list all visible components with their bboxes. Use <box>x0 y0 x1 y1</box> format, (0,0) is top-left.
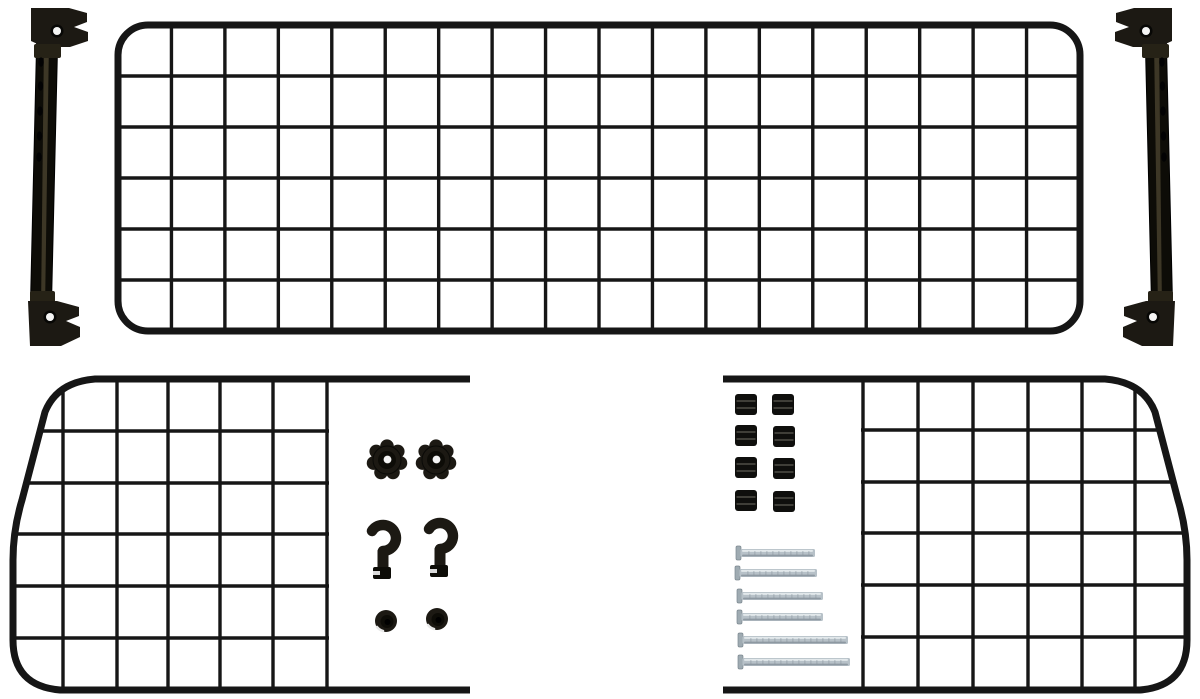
cap-hole <box>385 619 391 625</box>
knob-hole <box>433 456 441 464</box>
screw-thread <box>774 660 776 665</box>
spacer-body <box>735 425 757 446</box>
spacer-rib <box>775 439 794 441</box>
bar-screw-head <box>1149 313 1157 321</box>
end-cap <box>375 610 397 632</box>
spacer-rib <box>737 496 756 498</box>
bar-screw-head <box>53 27 61 35</box>
screw-thread <box>750 638 752 643</box>
screw-thread <box>768 660 770 665</box>
bar-adjust-hole <box>38 57 43 66</box>
screw-thread <box>753 571 755 576</box>
screw-highlight <box>744 637 846 639</box>
screw-thread <box>791 615 793 620</box>
knob-hole <box>384 456 392 464</box>
screw-thread <box>809 615 811 620</box>
bar-top-sleeve <box>34 44 61 58</box>
screw-thread <box>761 594 763 599</box>
screw-thread <box>778 551 780 556</box>
screw-thread <box>780 638 782 643</box>
spacer-body <box>773 491 795 512</box>
screw-head <box>738 655 743 669</box>
spacer-body <box>773 458 795 479</box>
end-cap <box>426 608 448 630</box>
screw-thread <box>785 594 787 599</box>
spacer-rib <box>737 431 756 433</box>
bar-adjust-hole <box>36 152 41 161</box>
spacer-rib <box>737 438 756 440</box>
screw-thread <box>750 660 752 665</box>
screw-thread <box>797 615 799 620</box>
screw-thread <box>755 594 757 599</box>
screw-thread <box>773 615 775 620</box>
screw-head <box>736 546 741 560</box>
screw-thread <box>804 660 806 665</box>
screw-thread <box>779 615 781 620</box>
spacer-rib <box>737 407 756 409</box>
screw-thread <box>815 594 817 599</box>
screw-thread <box>759 571 761 576</box>
screw-thread <box>807 571 809 576</box>
bar-adjust-hole <box>38 81 43 90</box>
screw-thread <box>779 594 781 599</box>
bar-adjust-hole <box>37 106 42 115</box>
screw-thread <box>754 551 756 556</box>
screw-thread <box>761 615 763 620</box>
screw-thread <box>809 594 811 599</box>
screw-thread <box>786 660 788 665</box>
screw-thread <box>784 551 786 556</box>
spacer-body <box>773 426 795 447</box>
spacer <box>735 425 757 446</box>
screw-thread <box>840 660 842 665</box>
cap-hole <box>436 617 442 623</box>
screw-thread <box>792 638 794 643</box>
bar-adjust-hole <box>1160 81 1165 90</box>
screw-head <box>738 633 743 647</box>
spacer-rib <box>737 400 756 402</box>
screw-thread <box>822 660 824 665</box>
screw-thread <box>834 638 836 643</box>
screw-thread <box>792 660 794 665</box>
screw-thread <box>785 615 787 620</box>
spacer-rib <box>775 504 794 506</box>
screw-thread <box>816 638 818 643</box>
screw-thread <box>804 638 806 643</box>
screw-thread <box>803 615 805 620</box>
screw-thread <box>777 571 779 576</box>
screw-thread <box>747 571 749 576</box>
screw-thread <box>756 660 758 665</box>
bar-adjust-hole <box>1159 57 1164 66</box>
spacer-rib <box>774 400 793 402</box>
spacer-rib <box>775 497 794 499</box>
spacer <box>735 490 757 511</box>
spacer-rib <box>774 407 793 409</box>
screw-thread <box>749 615 751 620</box>
screw-thread <box>762 660 764 665</box>
spacer <box>773 458 795 479</box>
screw-thread <box>801 571 803 576</box>
spacer-rib <box>737 470 756 472</box>
spacer-body <box>772 394 794 415</box>
screw-thread <box>797 594 799 599</box>
screw-thread <box>816 660 818 665</box>
screw-thread <box>815 615 817 620</box>
screw-thread <box>767 615 769 620</box>
spacer <box>735 457 757 478</box>
screw-thread <box>828 660 830 665</box>
screw-thread <box>768 638 770 643</box>
screw-thread <box>790 551 792 556</box>
screw-thread <box>772 551 774 556</box>
screw-thread <box>771 571 773 576</box>
spacer <box>735 394 757 415</box>
screw-thread <box>840 638 842 643</box>
screw-thread <box>791 594 793 599</box>
screw-thread <box>780 660 782 665</box>
screw-thread <box>755 615 757 620</box>
spacer-rib <box>737 503 756 505</box>
hook-foot-notch <box>430 569 437 573</box>
bar-adjust-hole <box>1161 152 1166 161</box>
screw-thread <box>795 571 797 576</box>
screw-thread <box>822 638 824 643</box>
screw-thread <box>834 660 836 665</box>
screw-head <box>735 566 740 580</box>
screw-thread <box>773 594 775 599</box>
screw-thread <box>803 594 805 599</box>
screw-thread <box>798 660 800 665</box>
spacer-rib <box>775 432 794 434</box>
screw-head <box>737 589 742 603</box>
spacer-body <box>735 457 757 478</box>
screw-thread <box>786 638 788 643</box>
bar-adjust-hole <box>37 131 42 140</box>
bar-adjust-hole <box>1161 131 1166 140</box>
screw-head <box>737 610 742 624</box>
product-photo <box>0 0 1200 699</box>
dog-guard-kit-scene <box>0 0 1200 699</box>
spacer-body <box>735 490 757 511</box>
spacer-rib <box>775 471 794 473</box>
screw-thread <box>766 551 768 556</box>
spacer-body <box>735 394 757 415</box>
bar-adjust-hole <box>1160 106 1165 115</box>
screw-thread <box>767 594 769 599</box>
spacer <box>773 491 795 512</box>
spacer-rib <box>737 463 756 465</box>
bar-screw-head <box>46 313 54 321</box>
screw-thread <box>808 551 810 556</box>
screw-thread <box>810 660 812 665</box>
screw-thread <box>783 571 785 576</box>
screw-thread <box>789 571 791 576</box>
screw-thread <box>760 551 762 556</box>
screw-thread <box>749 594 751 599</box>
screw-shade <box>744 664 848 666</box>
screw-thread <box>762 638 764 643</box>
screw-shade <box>744 642 846 644</box>
screw-thread <box>748 551 750 556</box>
spacer <box>773 426 795 447</box>
screw-thread <box>765 571 767 576</box>
spacer-rib <box>775 464 794 466</box>
screw-thread <box>828 638 830 643</box>
spacer <box>772 394 794 415</box>
screw-thread <box>774 638 776 643</box>
screw-thread <box>796 551 798 556</box>
hook-foot-notch <box>373 571 380 575</box>
screw-thread <box>756 638 758 643</box>
screw-thread <box>798 638 800 643</box>
bar-top-sleeve <box>1142 44 1169 58</box>
screw-thread <box>802 551 804 556</box>
screw-thread <box>810 638 812 643</box>
bar-screw-head <box>1142 27 1150 35</box>
screw-highlight <box>744 659 848 661</box>
